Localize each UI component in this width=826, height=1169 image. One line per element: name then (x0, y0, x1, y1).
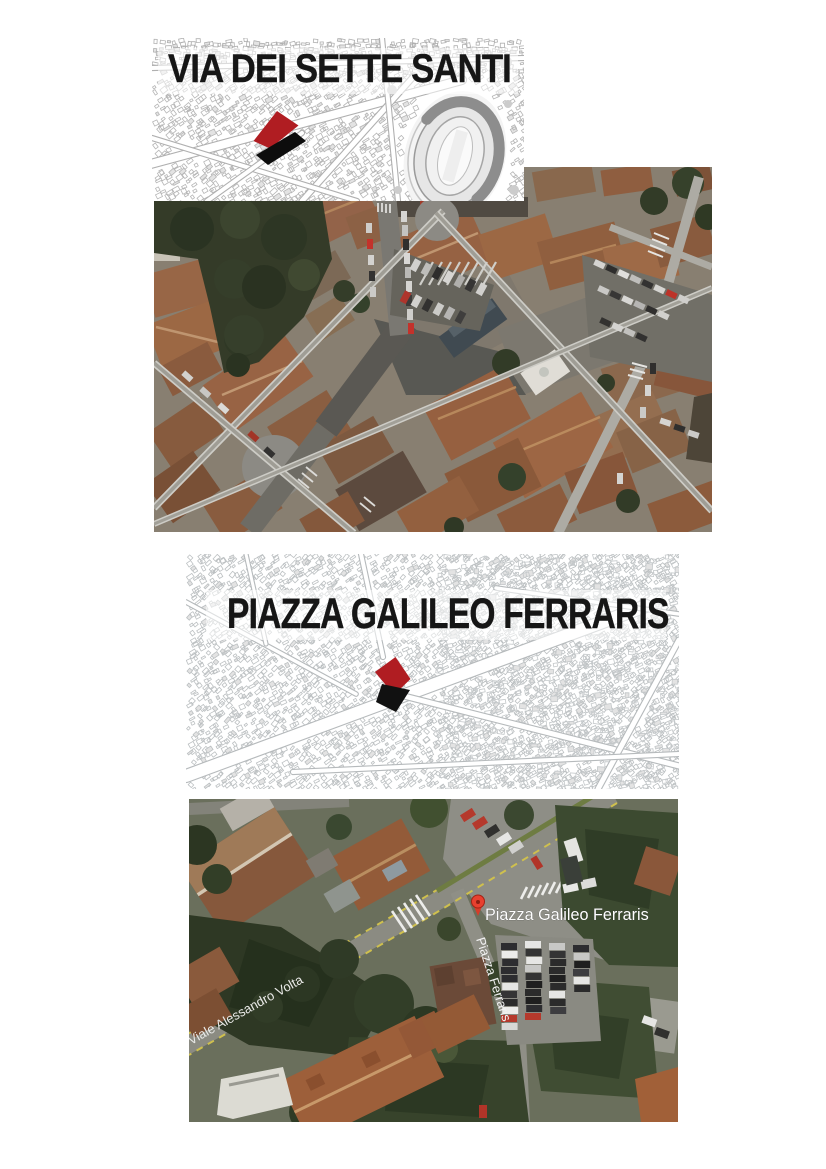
svg-text:Piazza Galileo Ferraris: Piazza Galileo Ferraris (485, 906, 649, 924)
